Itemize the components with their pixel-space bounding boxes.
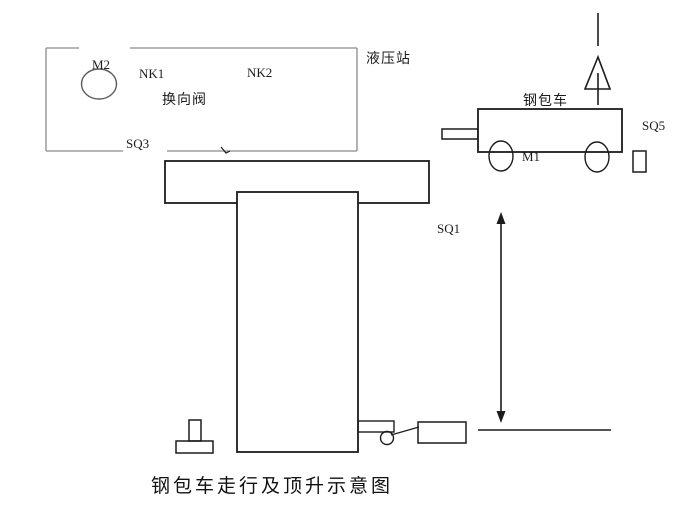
- main-linework: [165, 13, 646, 453]
- label-station: 液压站: [366, 53, 411, 67]
- pedestal-post-rect: [189, 420, 201, 441]
- label-car: 钢包车: [523, 95, 568, 109]
- diagram-title: 钢包车走行及顶升示意图: [151, 477, 393, 496]
- tow-bar-rect: [442, 129, 478, 139]
- arrowhead-up-icon: [497, 212, 506, 224]
- limit-switch-sq5-rect: [633, 151, 646, 172]
- label-nk2: NK2: [247, 66, 272, 79]
- jack-column-rect: [237, 192, 358, 452]
- pivot-circle-icon: [381, 432, 394, 445]
- motor-m2-circle-icon: [82, 69, 117, 99]
- schematic-canvas: M2 NK1 NK2 换向阀 SQ3 液压站 钢包车 M1 SQ5 SQ1 钢包…: [0, 0, 682, 514]
- lever-bracket-rect: [358, 421, 394, 432]
- arrowhead-down-icon: [497, 411, 506, 423]
- label-m2: M2: [92, 58, 110, 71]
- diagram-linework: [0, 0, 682, 514]
- label-m1: M1: [522, 150, 540, 163]
- label-valve: 换向阀: [162, 94, 207, 108]
- pedestal-base-rect: [176, 441, 213, 453]
- limit-switch-box: [418, 422, 466, 443]
- label-sq3: SQ3: [126, 137, 149, 150]
- lever-link-line: [391, 427, 419, 435]
- label-sq1: SQ1: [437, 222, 460, 235]
- ladle-car-body-rect: [478, 109, 622, 152]
- label-nk1: NK1: [139, 67, 164, 80]
- label-sq5: SQ5: [642, 119, 665, 132]
- tick-mark: [221, 147, 230, 153]
